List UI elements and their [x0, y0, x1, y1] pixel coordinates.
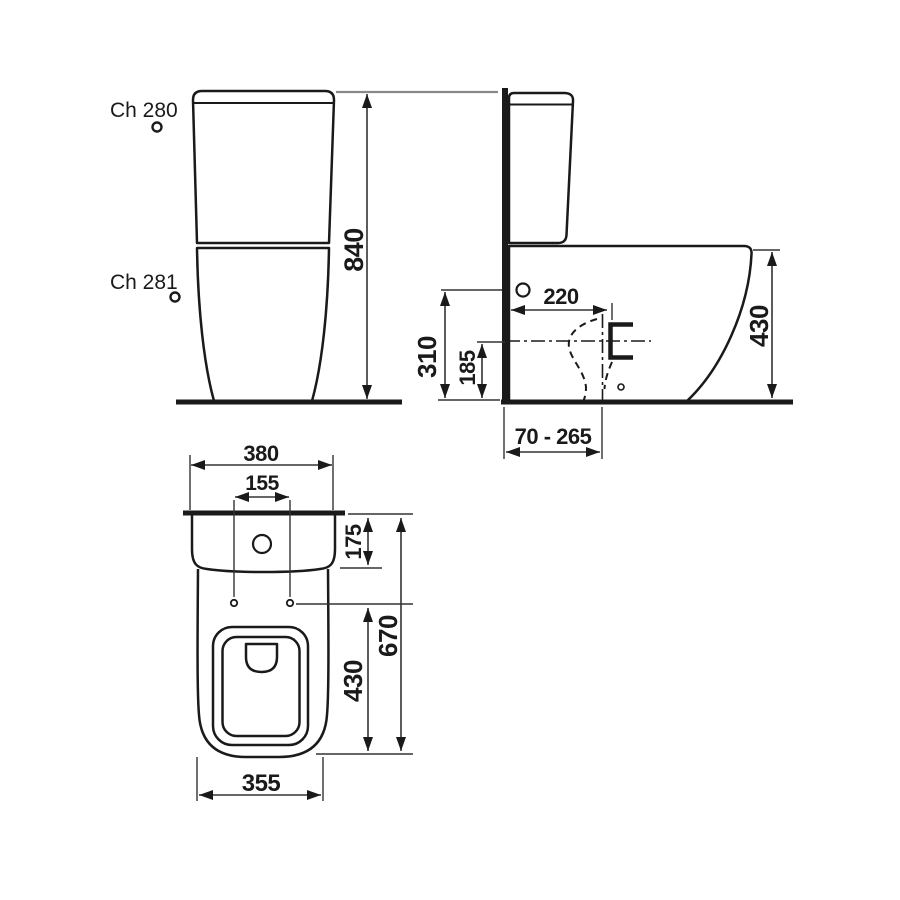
- model-label-bowl: Ch 281: [110, 271, 178, 294]
- model-marker-bowl: [171, 293, 180, 302]
- dim-text-155: 155: [245, 472, 279, 495]
- dim-text-175: 175: [341, 524, 366, 559]
- side-cistern-outline: [509, 93, 573, 243]
- front-cistern-outline: [193, 91, 334, 243]
- seat-hole-right: [287, 600, 293, 606]
- front-bowl-outline: [197, 248, 329, 401]
- plan-view: 380 155 175 430 670 355: [183, 441, 413, 801]
- dim-text-840: 840: [339, 228, 369, 272]
- side-view: 220 310 185 430 70 - 265: [412, 88, 793, 459]
- dim-text-355: 355: [242, 770, 281, 797]
- dim-text-430-side: 430: [744, 305, 774, 347]
- model-marker-cistern: [153, 123, 162, 132]
- drawing-canvas: Ch 280 Ch 281 840 220: [0, 0, 900, 900]
- dim-text-670: 670: [373, 615, 403, 657]
- dim-text-380: 380: [243, 441, 278, 466]
- water-surface-outline: [246, 644, 277, 672]
- dim-text-220: 220: [543, 284, 578, 309]
- model-label-cistern: Ch 280: [110, 99, 178, 122]
- seat-hole-left: [231, 600, 237, 606]
- dim-text-430-plan: 430: [338, 660, 368, 702]
- technical-drawing-toilet: Ch 280 Ch 281 840 220: [0, 0, 900, 900]
- water-inlet-hole: [517, 284, 530, 297]
- dim-text-185: 185: [455, 350, 480, 385]
- flush-button: [253, 535, 271, 553]
- dim-text-70-265: 70 - 265: [515, 424, 592, 449]
- trap-detail-hole: [618, 384, 624, 390]
- dim-text-310: 310: [412, 336, 442, 378]
